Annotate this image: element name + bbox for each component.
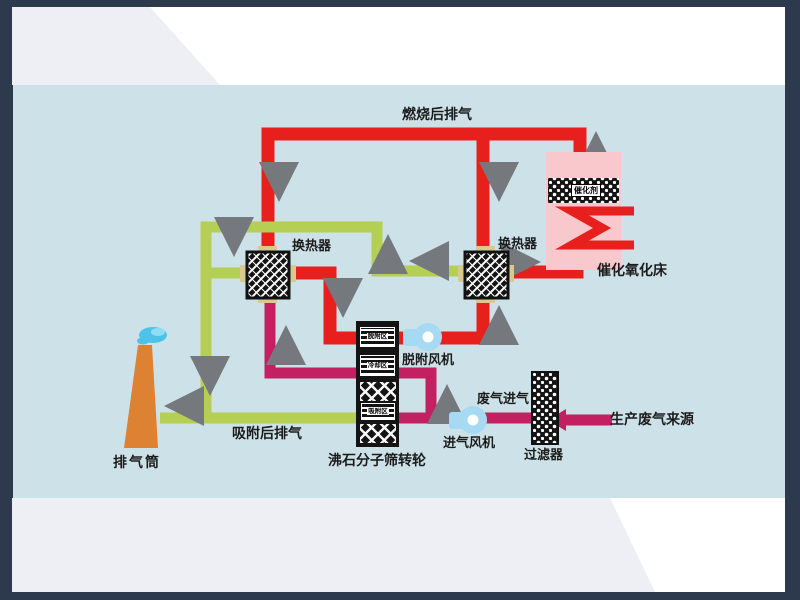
slide-frame: 脱附区 冷却区 吸附区 燃烧后排气 换热器 换热器 催化氧化床 催化剂 脱附风机… bbox=[0, 0, 800, 600]
after-adsorption-label: 吸附后排气 bbox=[232, 427, 302, 442]
rotor-zone-cooling: 冷却区 bbox=[360, 355, 395, 376]
exhaust-stack bbox=[124, 327, 167, 448]
catalyst-label: 催化剂 bbox=[571, 184, 601, 197]
rotor-zone-desorption: 脱附区 bbox=[360, 327, 395, 347]
rotor-hatch-lower bbox=[360, 424, 396, 443]
waste-source-label: 生产废气来源 bbox=[610, 413, 694, 428]
rotor-zone-cooling-label: 冷却区 bbox=[367, 362, 389, 370]
heat-exchanger-left-label: 换热器 bbox=[292, 240, 331, 254]
rotor-zone-adsorption: 吸附区 bbox=[361, 403, 395, 420]
catalytic-oxidation-bed bbox=[546, 152, 634, 270]
filter-label: 过滤器 bbox=[524, 449, 563, 463]
rotor-zone-adsorption-label: 吸附区 bbox=[367, 408, 389, 416]
intake-fan bbox=[449, 406, 487, 434]
heat-exchanger-right-label: 换热器 bbox=[498, 238, 537, 252]
rotor-hatch-upper bbox=[360, 382, 396, 401]
smoke-puff bbox=[137, 327, 167, 345]
process-flow-diagram bbox=[0, 0, 800, 600]
filter-box bbox=[532, 372, 558, 444]
heat-exchanger-left bbox=[240, 246, 296, 303]
pipe-clean-exhaust bbox=[160, 227, 465, 418]
catalytic-bed-label: 催化氧化床 bbox=[597, 264, 667, 279]
rotor-label: 沸石分子筛转轮 bbox=[317, 454, 437, 469]
rotor-zone-desorption-label: 脱附区 bbox=[367, 333, 389, 341]
desorption-fan-label: 脱附风机 bbox=[402, 354, 454, 368]
intake-fan-label: 进气风机 bbox=[443, 437, 495, 451]
heat-exchanger-right bbox=[458, 246, 514, 303]
combusted-exhaust-label: 燃烧后排气 bbox=[377, 108, 497, 123]
waste-inlet-label: 废气进气 bbox=[477, 393, 529, 407]
desorption-fan bbox=[403, 323, 442, 351]
stack-label: 排气筒 bbox=[113, 456, 161, 471]
